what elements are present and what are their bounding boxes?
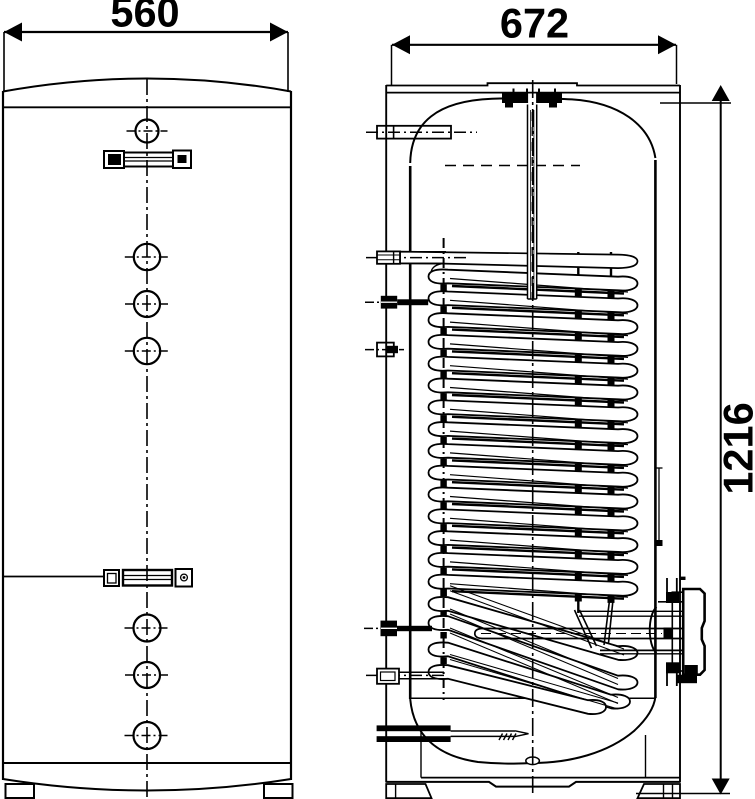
svg-text:560: 560 — [110, 0, 179, 36]
svg-text:1216: 1216 — [715, 402, 755, 494]
svg-text:672: 672 — [500, 0, 569, 47]
